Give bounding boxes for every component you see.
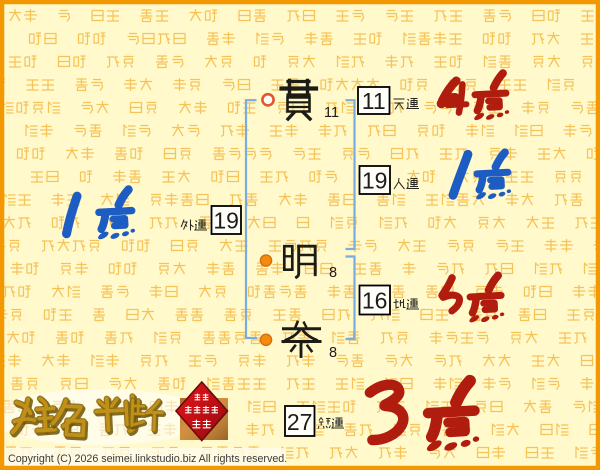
svg-text:16: 16 xyxy=(362,288,388,314)
svg-text:11: 11 xyxy=(362,88,386,114)
svg-text:19: 19 xyxy=(362,168,388,194)
svg-text:11: 11 xyxy=(324,105,339,121)
svg-text:8: 8 xyxy=(329,265,337,281)
svg-text:8: 8 xyxy=(329,345,337,361)
svg-text:Copyright (C) 2026 seimei.link: Copyright (C) 2026 seimei.linkstudio.biz… xyxy=(8,453,287,465)
svg-text:19: 19 xyxy=(213,208,239,234)
svg-text:27: 27 xyxy=(287,409,313,435)
